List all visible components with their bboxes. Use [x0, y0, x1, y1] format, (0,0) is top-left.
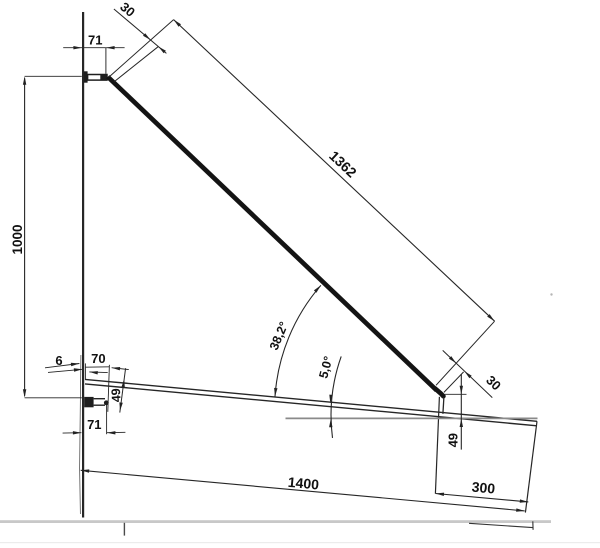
svg-text:1400: 1400 [287, 474, 320, 493]
svg-text:70: 70 [91, 351, 105, 366]
svg-text:300: 300 [471, 479, 496, 497]
svg-text:71: 71 [87, 417, 101, 432]
svg-text:1000: 1000 [10, 224, 25, 254]
svg-text:49: 49 [109, 388, 124, 403]
svg-text:71: 71 [88, 33, 102, 48]
svg-text:49: 49 [445, 433, 460, 447]
